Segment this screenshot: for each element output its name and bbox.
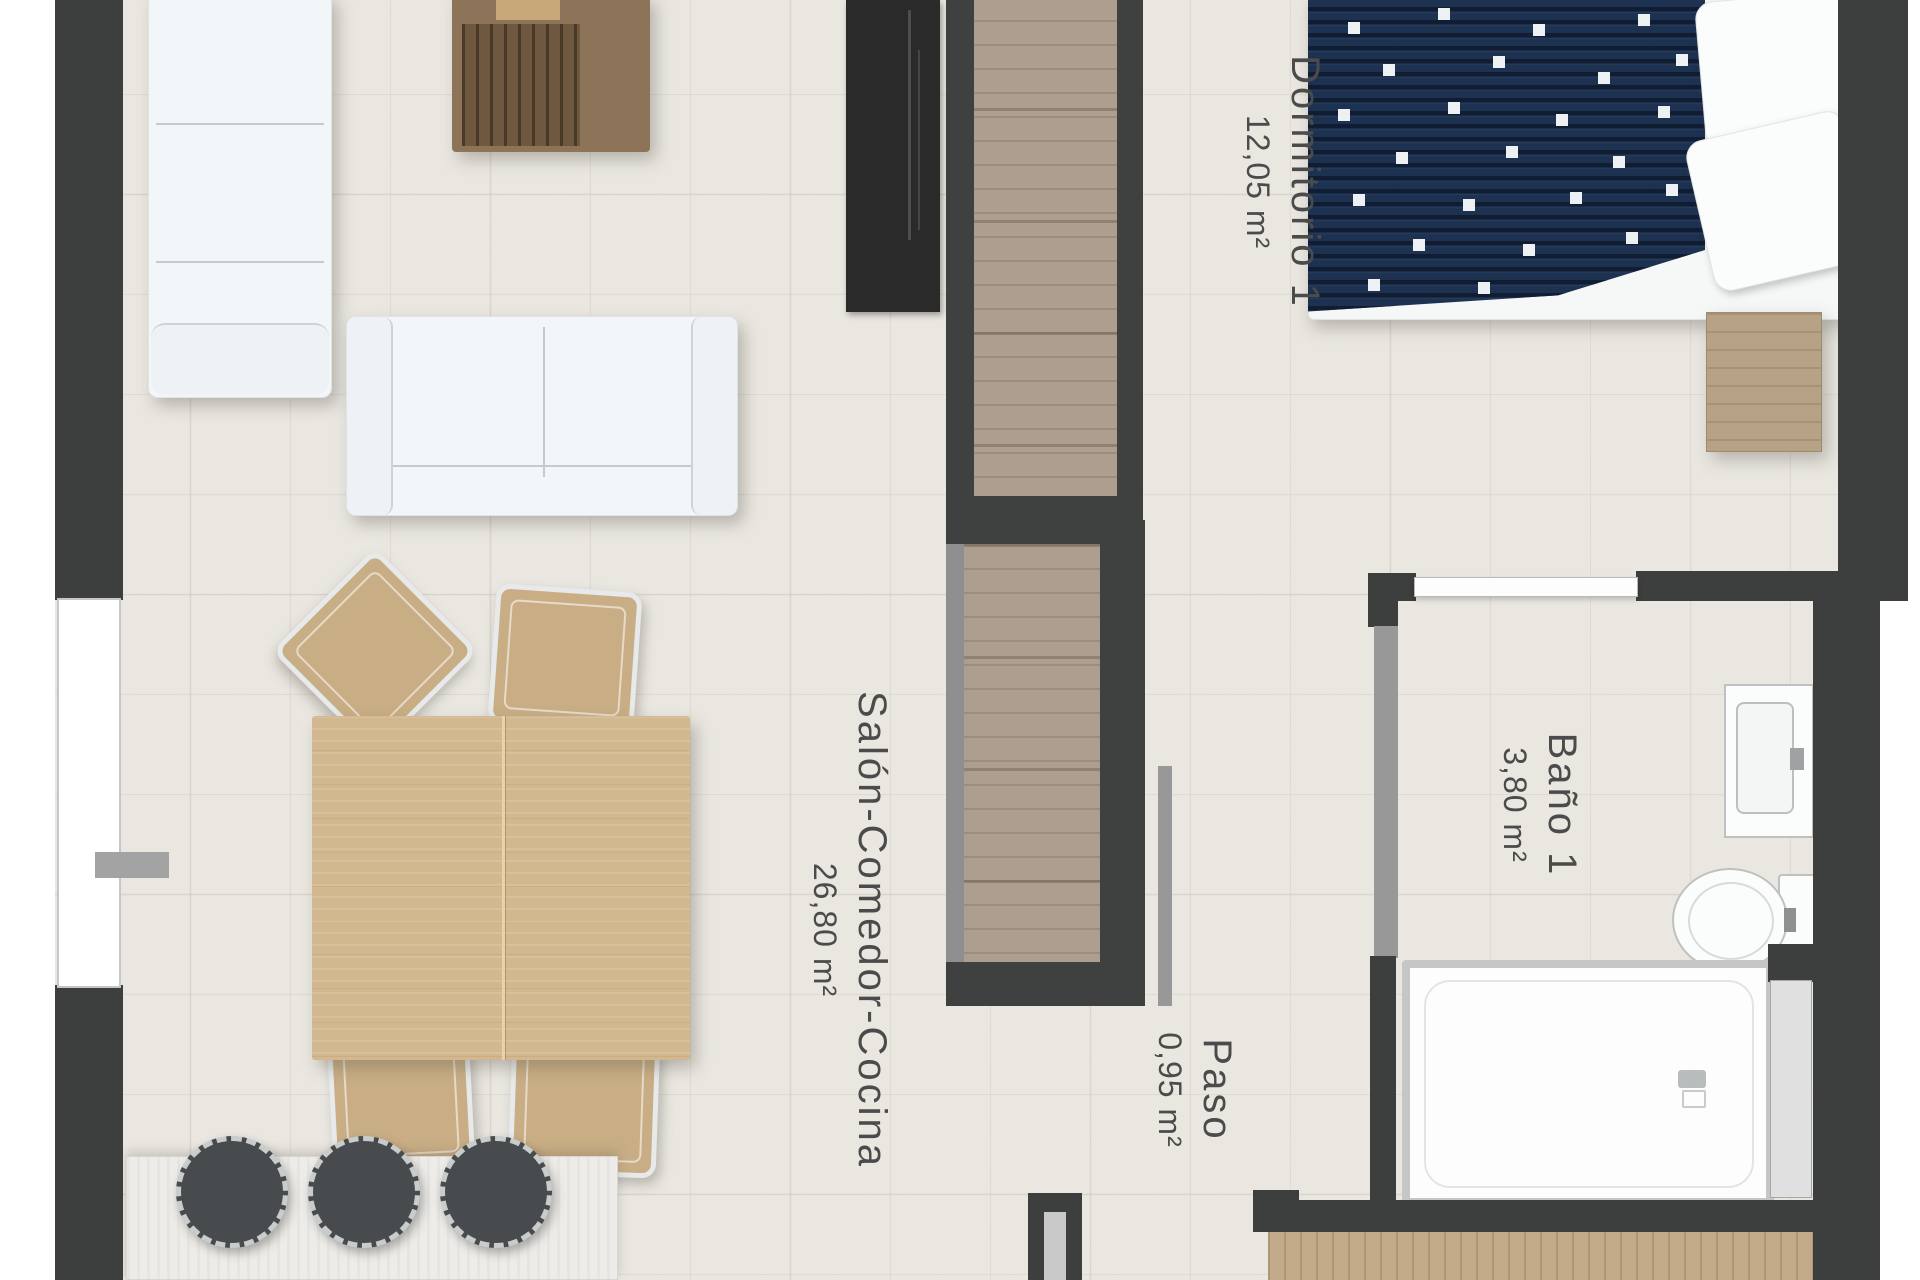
room-name: Paso [1194,1032,1239,1147]
wardrobe-frame [946,520,1122,544]
chair-frame [503,599,626,717]
sofa-vertical [148,0,332,398]
flush-button [1784,908,1796,932]
wardrobe-doors [964,544,1100,962]
tv-unit [846,0,940,312]
sideboard-bottom [1268,1232,1814,1280]
wall-bathroom-left-lower [1370,956,1396,1206]
sofa-armrest [151,323,329,395]
drain-detail [1682,1090,1706,1108]
wardrobe-frame [946,962,1145,1006]
wardrobe-upper [946,0,1143,520]
wardrobe-doors [974,0,1117,496]
room-area: 0,95 m² [1151,1032,1188,1147]
room-label-bano-1: Baño 1 3,80 m² [1496,733,1584,878]
room-area: 12,05 m² [1239,55,1276,309]
tv-unit-highlight [918,50,920,230]
duvet-pattern [1308,0,1320,6]
nightstand [1706,312,1822,452]
faucet [1790,748,1804,770]
wall-stub-niche [1768,944,1814,982]
room-area: 26,80 m² [806,691,843,1169]
sofa-armrest [691,317,737,515]
room-name: Baño 1 [1539,733,1584,878]
sink-basin [1736,702,1794,814]
sofa-cushion-seam [156,261,323,263]
room-label-paso: Paso 0,95 m² [1151,1032,1239,1147]
bed [1308,0,1842,320]
wall-bathroom-bottom [1253,1200,1880,1232]
shower-tray [1402,960,1774,1206]
wall-stub-corridor [1158,766,1172,1006]
wall-right-top [1838,0,1908,601]
coffee-table-slats [462,24,580,146]
sofa-cushion-seam [543,327,545,477]
room-label-salon-comedor-cocina: Salón-Comedor-Cocina 26,80 m² [806,691,894,1169]
dining-chair [487,583,642,733]
window-divider [95,852,169,878]
wardrobe-lower [946,520,1145,1006]
sofa-cushion-seam [363,465,722,467]
coffee-table [452,0,650,152]
wardrobe-frame [946,544,964,962]
door-jamb-lower [1368,601,1398,627]
sofa-horizontal [346,316,738,516]
toilet-bowl-inner [1688,882,1774,960]
wardrobe-frame [1100,520,1145,1006]
wall-niche [1770,980,1812,1198]
bar-stool [440,1136,552,1248]
outside-margin-left [0,0,55,1280]
wall-right-bottom [1813,601,1880,1280]
wall-bathroom-left-upper [1374,626,1398,958]
bar-stool [176,1136,288,1248]
outside-margin-right-top [1908,0,1920,601]
door-jamb [1368,573,1416,601]
dining-table [312,716,690,1060]
drain [1678,1070,1706,1088]
room-area: 3,80 m² [1496,733,1533,878]
door-frame-inner [1044,1212,1066,1280]
table-leaf-seam [502,716,505,1060]
coffee-table-tray [496,0,560,20]
wall-bathroom-top [1636,571,1838,601]
sofa-armrest [347,317,393,515]
wall-left-bottom [55,985,123,1280]
wall-left-top [55,0,123,600]
window-left [57,598,121,988]
room-name: Dormitorio 1 [1282,55,1327,309]
tv-unit-highlight [908,10,911,240]
outside-margin-right-bottom [1880,601,1920,1280]
room-name: Salón-Comedor-Cocina [849,691,894,1169]
sink-vanity [1724,684,1814,838]
room-label-dormitorio-1: Dormitorio 1 12,05 m² [1239,55,1327,309]
bar-stool [308,1136,420,1248]
door-frame-bottom [1028,1193,1082,1280]
floor-plan: Salón-Comedor-Cocina 26,80 m² Dormitorio… [0,0,1920,1280]
sofa-cushion-seam [156,123,323,125]
bathroom-door [1414,577,1638,597]
chair-frame [523,1049,645,1163]
